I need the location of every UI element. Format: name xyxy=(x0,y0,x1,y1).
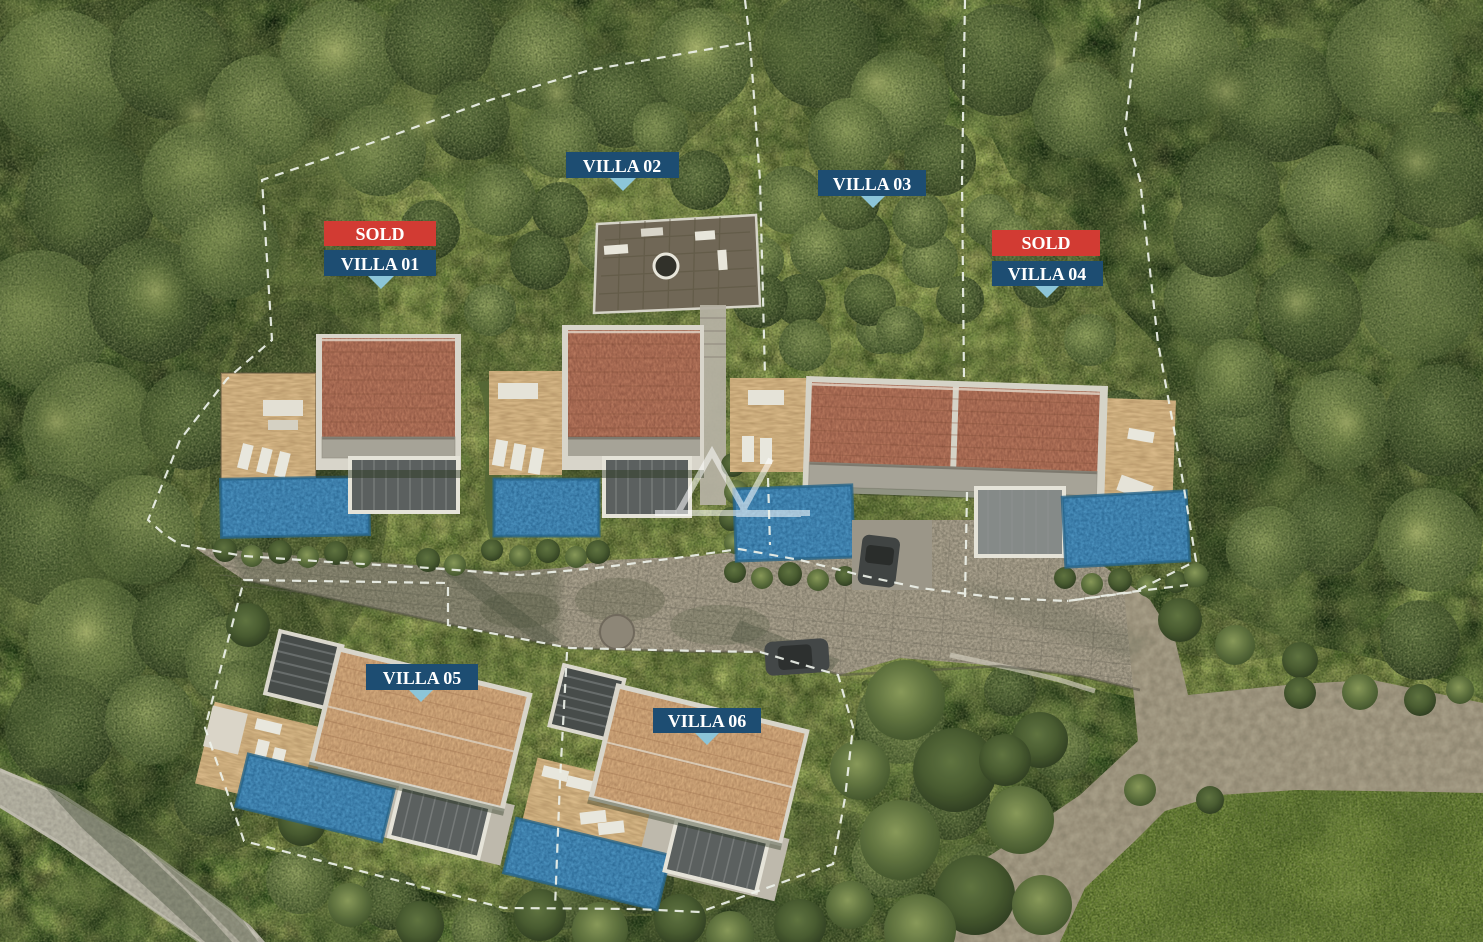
svg-text:VILLA 04: VILLA 04 xyxy=(1008,264,1087,284)
svg-text:VILLA 03: VILLA 03 xyxy=(833,174,912,194)
svg-text:SOLD: SOLD xyxy=(1021,233,1070,253)
svg-text:SOLD: SOLD xyxy=(355,224,404,244)
svg-text:VILLA 02: VILLA 02 xyxy=(583,156,662,176)
svg-text:VILLA 05: VILLA 05 xyxy=(383,668,462,688)
svg-text:VILLA 01: VILLA 01 xyxy=(341,254,420,274)
svg-text:VILLA 06: VILLA 06 xyxy=(668,711,747,731)
